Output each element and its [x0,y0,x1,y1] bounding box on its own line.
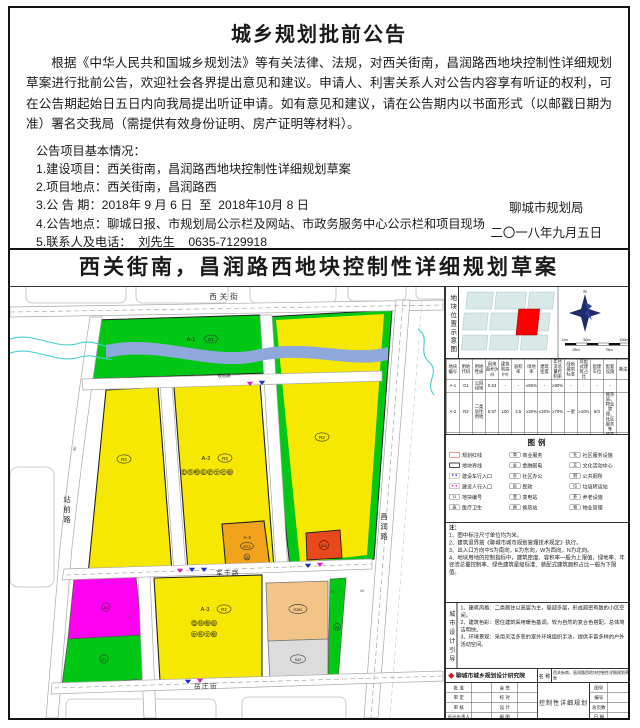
legend-label: 建设人行入口 [462,483,492,491]
label-a3: A-3 [200,607,209,613]
legend-item: 地块界线 [449,460,506,471]
legend-chip: 社 [570,452,581,458]
context-parcel [242,697,346,718]
signature: 聊城市规划局 二〇一八年九月五日 [490,196,602,246]
legend-item: 文文化活动中心 [570,460,627,471]
label-red-code: B41 [321,544,327,548]
legend-label: 商业服务 [522,451,542,459]
legend-label: 地块界线 [462,462,482,470]
titleblock-label: 设 计 [492,703,518,713]
table-cell: 100 [499,392,512,432]
road-label-zhanqian: 前 [63,504,71,514]
table-cell: - [538,380,551,393]
table-cell: 2.5 [512,392,525,432]
legend-item: 商商业服务 [509,450,566,461]
info-panel: 地块位置示意图 N [444,287,628,718]
table-header: 建筑密度 [538,359,551,379]
titleblock-label: 批 准 [446,683,472,693]
location-inset: 地块位置示意图 N [446,287,628,359]
titleblock-value [472,712,492,718]
legend-chip [449,452,460,458]
legend-label: 公共厕所 [583,472,603,480]
table-cell: ≥90% [551,380,564,393]
legend-chip: 文 [570,463,581,469]
label-a2-amenities: 电热物居老文社厕 [182,469,235,476]
legend-item: 养养老设施 [570,492,627,503]
name-value: 西关街南，昌润路西地块控制性详细规划草案 [552,669,628,682]
institute-name: 聊城市城乡规划设计研究院 [456,672,525,680]
legend-item: 办社区办公 [509,471,566,482]
label-west-code: R2 [121,457,127,462]
table-header: 用地性质 [472,359,485,379]
titleblock-label: 编号 [590,693,608,703]
legend-item: 变变电站 [509,492,566,503]
titleblock-label: 总页数 [590,703,608,713]
block-a3 [154,575,262,681]
titleblock-label: 设计负责人 [446,712,472,718]
titleblock-label: 校 对 [492,693,518,703]
design-item: 1、建筑风格：二类居住以高层为主，局部多层，形成疏密有致的小区空间。 [461,605,627,620]
label-a3-amenities-2: 办民文厕 [192,631,218,638]
table-cell: - [577,380,590,393]
scale-tick: 25m [572,348,579,352]
label-a4: A-4 [243,535,251,541]
scale-tick: 75m [605,348,612,352]
context-parcel [66,699,216,718]
table-cell [617,392,628,432]
table-header: 装配式建筑占比 [577,359,590,379]
table-cell: A-1 [446,380,459,393]
block-west-r2 [88,387,172,575]
titleblock-label: 图号 [590,683,608,693]
page-frame: 城乡规划批前公告 根据《中华人民共和国城乡规划法》等有关法律、法规，对西关街南，… [8,6,630,720]
titleblock-value [472,703,492,713]
context-parcel [26,287,126,303]
scale-tick: 50m [583,338,590,342]
titleblock-value [518,712,538,718]
legend-chip: 商 [509,452,520,458]
label-a1-code: G1 [208,337,214,342]
dim-label: 30 [190,372,195,377]
scale-tick: 0m [562,338,567,342]
table-cell [617,380,628,393]
road-minor-ns-c [138,575,156,718]
note-item: 1、图中标注尺寸单位均为米。 [449,532,627,539]
legend-label: 建设车行入口 [462,472,492,480]
table-cell: 二类居住用地 [472,392,485,432]
label-a3-amenities-1: 电热物居 [192,620,218,627]
label-strip-code: G2 [335,626,339,630]
legend-label: 医疗卫生 [462,504,482,512]
note-item: 3、出入口方向中S为南向，E为东向，W为西向，N为北向。 [449,547,627,554]
context-parcel [250,287,336,303]
legend-chip: 民 [509,484,520,490]
legend-item: 物物业管理 [570,502,627,513]
legend-item: 垃垃圾转运站 [570,481,627,492]
table-cell: ≥70% [551,392,564,432]
table-header: 地块编号 [446,359,459,379]
titleblock-value [518,693,538,703]
titleblock-value [608,683,628,693]
institute-logo-icon [448,672,454,678]
plan-title: 西关街南，昌润路西地块控制性详细规划草案 [10,250,628,287]
table-header: 配套设施 [603,359,616,379]
announcement-item: 1.建设项目：西关街南，昌润路西地块控制性详细规划草案 [36,160,612,178]
table-cell: 换热站、物业管理、社区服务等 [603,392,616,432]
legend-label: 变电站 [522,493,537,501]
legend-item: ▼▼建设车行入口 [449,471,506,482]
legend-label: 社区办公 [522,472,542,480]
legend-chip [449,463,460,469]
titleblock-value [608,712,628,718]
label-a4-code: R22 [243,544,251,549]
table-cell: ≥10% [577,392,590,432]
label-tan-code: R2B1 [294,608,303,612]
announcement-item: 2.项目地点：西关街南，昌润路西 [36,178,612,196]
scale-tick: 100m [619,338,628,342]
signature-org: 聊城市规划局 [490,196,602,221]
table-cell: 0.53 [486,380,499,393]
legend-chip: 变 [509,494,520,500]
table-cell: - [499,380,512,393]
legend-item: 规划红线 [449,450,506,461]
legend-label: 物业管理 [583,504,603,512]
legend-item: 11地块编号 [449,492,506,503]
table-cell: - [603,380,616,393]
titleblock-value [472,693,492,703]
table-cell: G1 [459,380,472,393]
titleblock-value [518,703,538,713]
legend-chip: 11 [449,494,460,500]
label-east-code: R2 [319,435,325,440]
titleblock-value [608,703,628,713]
legend-chip: 物 [570,505,581,511]
table-cell: 公园绿地 [472,380,485,393]
table-cell: R2 [459,392,472,432]
note-item: 4、地块用地的控制指标中，建筑密度、容积率一般为上限值，绿地率、年径流总量控制率… [449,554,627,576]
plan-map: 西关街 规划路 军干路 岳庄街 40 30 16 20 40 A-1 [10,287,444,718]
legend-chip: 医 [449,505,460,511]
road-label-changrun: 润 [380,521,388,531]
urban-design-label: 城市设计引导 [446,603,458,668]
institute-cell: 聊城市城乡规划设计研究院 [446,669,538,682]
table-header: 配建车位 [590,359,603,379]
inset-site-highlight [516,309,540,335]
dim-label: 20 [330,589,335,594]
announcement-section: 城乡规划批前公告 根据《中华人民共和国城乡规划法》等有关法律、法规，对西关街南，… [10,8,628,248]
table-cell: ≥30% [525,392,538,432]
table-cell: ≤20% [538,392,551,432]
label-magenta-code: B4 [104,606,109,610]
titleblock-value [608,693,628,703]
design-item: 3、环境景观：采用灵活多变的室外环境组织手法，提供丰富多样的户外活动空间。 [461,634,627,649]
titleblock-value [472,683,492,693]
info-heading: 公告项目基本情况： [36,142,612,160]
announcement-body: 根据《中华人民共和国城乡规划法》等有关法律、法规，对西关街南，昌润路西地块控制性… [26,53,612,135]
design-item: 2、建筑色彩：居住建筑采用暖色基调，较为自然的复合色搭配，总体简洁明快。 [461,620,627,635]
notes-section: 注： 1、图中标注尺寸单位均为米。2、建筑退界按《聊城市城市规划管理技术规定》执… [446,523,628,603]
arrow-blue-icon: ▼▼ [449,473,460,479]
name-label: 名 称 [538,669,552,682]
titleblock-value [518,683,538,693]
legend-chip: 办 [509,473,520,479]
table-cell: - [512,380,525,393]
scale-bar [565,343,628,346]
table-cell: 9/3 [590,392,603,432]
legend-item: ▼▼建设人行入口 [449,481,506,492]
inset-label: 地块位置示意图 [446,287,459,358]
legend-chip: 养 [570,494,581,500]
urban-design-section: 城市设计引导 1、建筑风格：二类居住以高层为主，局部多层，形成疏密有致的小区空间… [446,603,628,669]
legend-label: 规划红线 [462,451,482,459]
road-label-guihua: 规划路 [217,372,231,379]
plan-document: 西关街南，昌润路西地块控制性详细规划草案 [10,248,628,718]
arrow-magenta-icon: ▼▼ [449,484,460,490]
announcement-title: 城乡规划批前公告 [26,18,612,47]
legend-item: 换换热站 [509,502,566,513]
titleblock-label: 制 图 [492,712,518,718]
signature-date: 二〇一八年九月五日 [490,221,602,246]
label-gray-code: S42 [295,658,302,662]
legend-item: 民民政 [509,481,566,492]
legend-chip: 金 [509,463,520,469]
legend-chip: 换 [509,505,520,511]
table-row: A-1G1公园绿地0.53--≥85%-≥90%---- [446,380,628,393]
notes-heading: 注： [449,525,460,531]
road-label-yuezhuang: 岳庄街 [194,681,218,690]
label-a1: A-1 [186,337,195,343]
label-a2-code: R2 [222,456,228,461]
road-label-xiguan: 西关街 [209,291,241,301]
legend-item: 社社区服务设施 [570,450,627,461]
road-label-jungan: 军干路 [216,568,240,577]
table-header: 用地代码 [459,359,472,379]
table-cell: ≥85% [525,380,538,393]
context-parcel [416,287,444,299]
legend-label: 金融邮电 [522,462,542,470]
table-cell: A-2 [446,392,459,432]
inset-map-svg: N 0m 50m 100m [459,287,628,358]
table-cell: - [590,380,603,393]
table-cell: - [564,380,577,393]
table-header: 容积率 [512,359,525,379]
label-green-code: G1 [101,658,106,662]
table-cell: 5.57 [486,392,499,432]
titleblock-label: 审 定 [446,693,472,703]
label-a3-code: R2 [221,607,227,612]
table-cell: 一星 [564,392,577,432]
legend-item: 医医疗卫生 [449,502,506,513]
table-header: 绿地率 [525,359,538,379]
legend-chip: 厕 [570,473,581,479]
legend-item: 金金融邮电 [509,460,566,471]
legend-label: 文化活动中心 [583,462,613,470]
label-a4-amenity: 幼 [245,555,249,560]
legend-label: 社区服务设施 [583,451,613,459]
table-header: 建筑限高(m) [499,359,512,379]
dim-label: 40 [360,588,365,593]
title-block: 聊城市城乡规划设计研究院 名 称 西关街南，昌润路西地块控制性详细规划草案 批 … [446,669,628,718]
legend-label: 地块编号 [462,493,482,501]
legend-item: 厕公共厕所 [570,471,627,482]
legend-label: 换热站 [522,504,537,512]
north-label: N [583,289,586,294]
legend-chip: 垃 [570,484,581,490]
titleblock-label: 会 签 [492,683,518,693]
legend-label: 民政 [522,483,532,491]
road-label-changrun: 昌 [380,512,388,521]
control-indicator-table: 地块编号用地代码用地性质用地面积(ha)建筑限高(m)容积率绿地率建筑密度年径流… [446,359,628,435]
titleblock-label: 日 期 [590,712,608,718]
table-header: 年径流总量控制率 [551,359,564,379]
legend-section: 图例 规划红线地块界线▼▼建设车行入口▼▼建设人行入口11地块编号医医疗卫生商商… [446,435,628,523]
label-a2: A-2 [201,456,210,462]
road-label-zhanqian: 路 [63,514,71,524]
river-east [418,329,434,395]
road-label-zhanqian: 站 [63,494,71,504]
legend-title: 图例 [449,437,627,448]
context-parcel [348,287,406,301]
drawing-type: 控制性详细规划 [538,683,590,718]
legend-label: 垃圾转运站 [583,483,608,491]
plan-map-svg: 西关街 规划路 军干路 岳庄街 40 30 16 20 40 A-1 [10,287,444,718]
context-parcel [10,467,54,587]
note-item: 2、建筑退界按《聊城市城市规划管理技术规定》执行。 [449,539,627,546]
table-row: A-2R2二类居住用地5.571002.5≥30%≤20%≥70%一星≥10%9… [446,392,628,432]
road-label-changrun: 路 [380,531,388,541]
table-header: 备注 [617,359,628,379]
legend-label: 养老设施 [583,493,603,501]
table-header: 绿色建筑标准 [564,359,577,379]
table-header: 用地面积(ha) [486,359,499,379]
titleblock-label: 审 核 [446,703,472,713]
